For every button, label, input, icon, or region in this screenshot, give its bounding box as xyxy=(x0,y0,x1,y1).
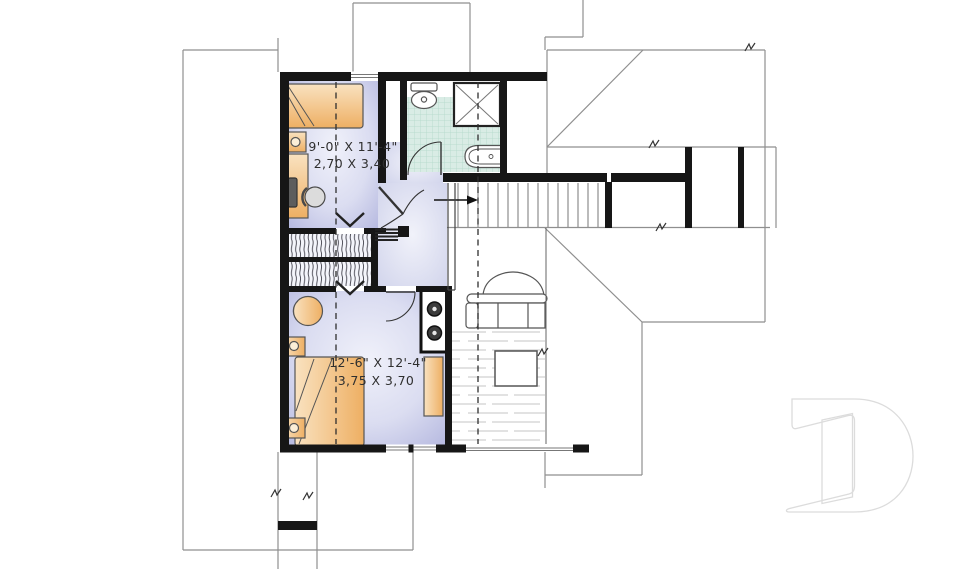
bedroom2-dimensions-metric: 3,75 X 3,70 xyxy=(338,373,415,388)
wall-bathroom-east xyxy=(500,81,507,182)
sofa-seat xyxy=(477,303,545,328)
bedroom2-dimensions-imperial: 12'-6" X 12'-4" xyxy=(329,355,427,370)
wall-exterior-bottom xyxy=(280,445,387,453)
chimney xyxy=(421,289,448,352)
wall-exterior-bottom xyxy=(573,445,589,453)
window-open-area-south xyxy=(466,446,573,453)
fireplace xyxy=(495,351,537,386)
sofa-armrest xyxy=(466,303,478,328)
wall-closet-front-top xyxy=(280,228,336,234)
stair-treads xyxy=(458,183,598,227)
wall-attic-slit xyxy=(607,173,611,182)
toilet-tank xyxy=(411,83,437,91)
wall-closet-east xyxy=(371,234,378,286)
wall-bedroom2-east xyxy=(445,291,452,445)
bedroom1-dimensions-metric: 2,70 X 3,40 xyxy=(314,156,391,171)
sink xyxy=(465,146,500,168)
lamp xyxy=(291,138,300,147)
roofline-bottom-chimney xyxy=(278,452,413,569)
wall-exterior-bottom xyxy=(436,445,466,453)
desk-monitor xyxy=(288,178,297,207)
wall-closet-front-bottom xyxy=(280,286,336,292)
bedroom1-closet-floor xyxy=(289,234,371,257)
dresser xyxy=(424,357,443,416)
sofa-back-rail xyxy=(467,294,547,303)
wall-hall-south-jamb xyxy=(378,286,386,292)
wall-newel-block xyxy=(398,226,409,237)
wall-closet-front-bottom xyxy=(364,286,378,292)
bed-single xyxy=(284,84,363,128)
wall-stair-north xyxy=(443,173,690,182)
floor-plan-page: 9'-0" X 11'-4" 2,70 X 3,40 12'-6" X 12'-… xyxy=(0,0,960,569)
roofline-top-center xyxy=(353,3,470,72)
floor-plan-drawing: 9'-0" X 11'-4" 2,70 X 3,40 12'-6" X 12'-… xyxy=(0,0,960,569)
desk-chair xyxy=(305,187,325,207)
roof-hip-diagonal-upper xyxy=(547,50,643,147)
builder-logo-d-icon xyxy=(786,399,913,512)
lamp xyxy=(290,342,299,351)
window-top-wall xyxy=(351,72,378,82)
wall-bathroom-west xyxy=(400,81,407,180)
toilet-drain xyxy=(421,97,426,102)
window-bedroom2-south xyxy=(386,445,436,453)
shower-stall xyxy=(454,83,500,126)
lamp xyxy=(290,424,299,433)
wall-wing-vertical xyxy=(685,147,692,228)
bedroom1-dimensions-imperial: 9'-0" X 11'-4" xyxy=(308,139,397,154)
bedroom2-closet-floor xyxy=(289,262,371,286)
stair-railing xyxy=(448,183,455,290)
wall-exterior-top xyxy=(280,72,547,81)
wall-wing-vertical xyxy=(738,147,744,228)
roofline-top-right-step xyxy=(545,0,583,50)
wall-wing-vertical xyxy=(605,182,612,228)
wall-closet-mid xyxy=(280,257,378,262)
lower-chimney-cap xyxy=(278,521,317,530)
sofa-back-curve xyxy=(483,272,544,295)
staircase xyxy=(434,183,598,227)
